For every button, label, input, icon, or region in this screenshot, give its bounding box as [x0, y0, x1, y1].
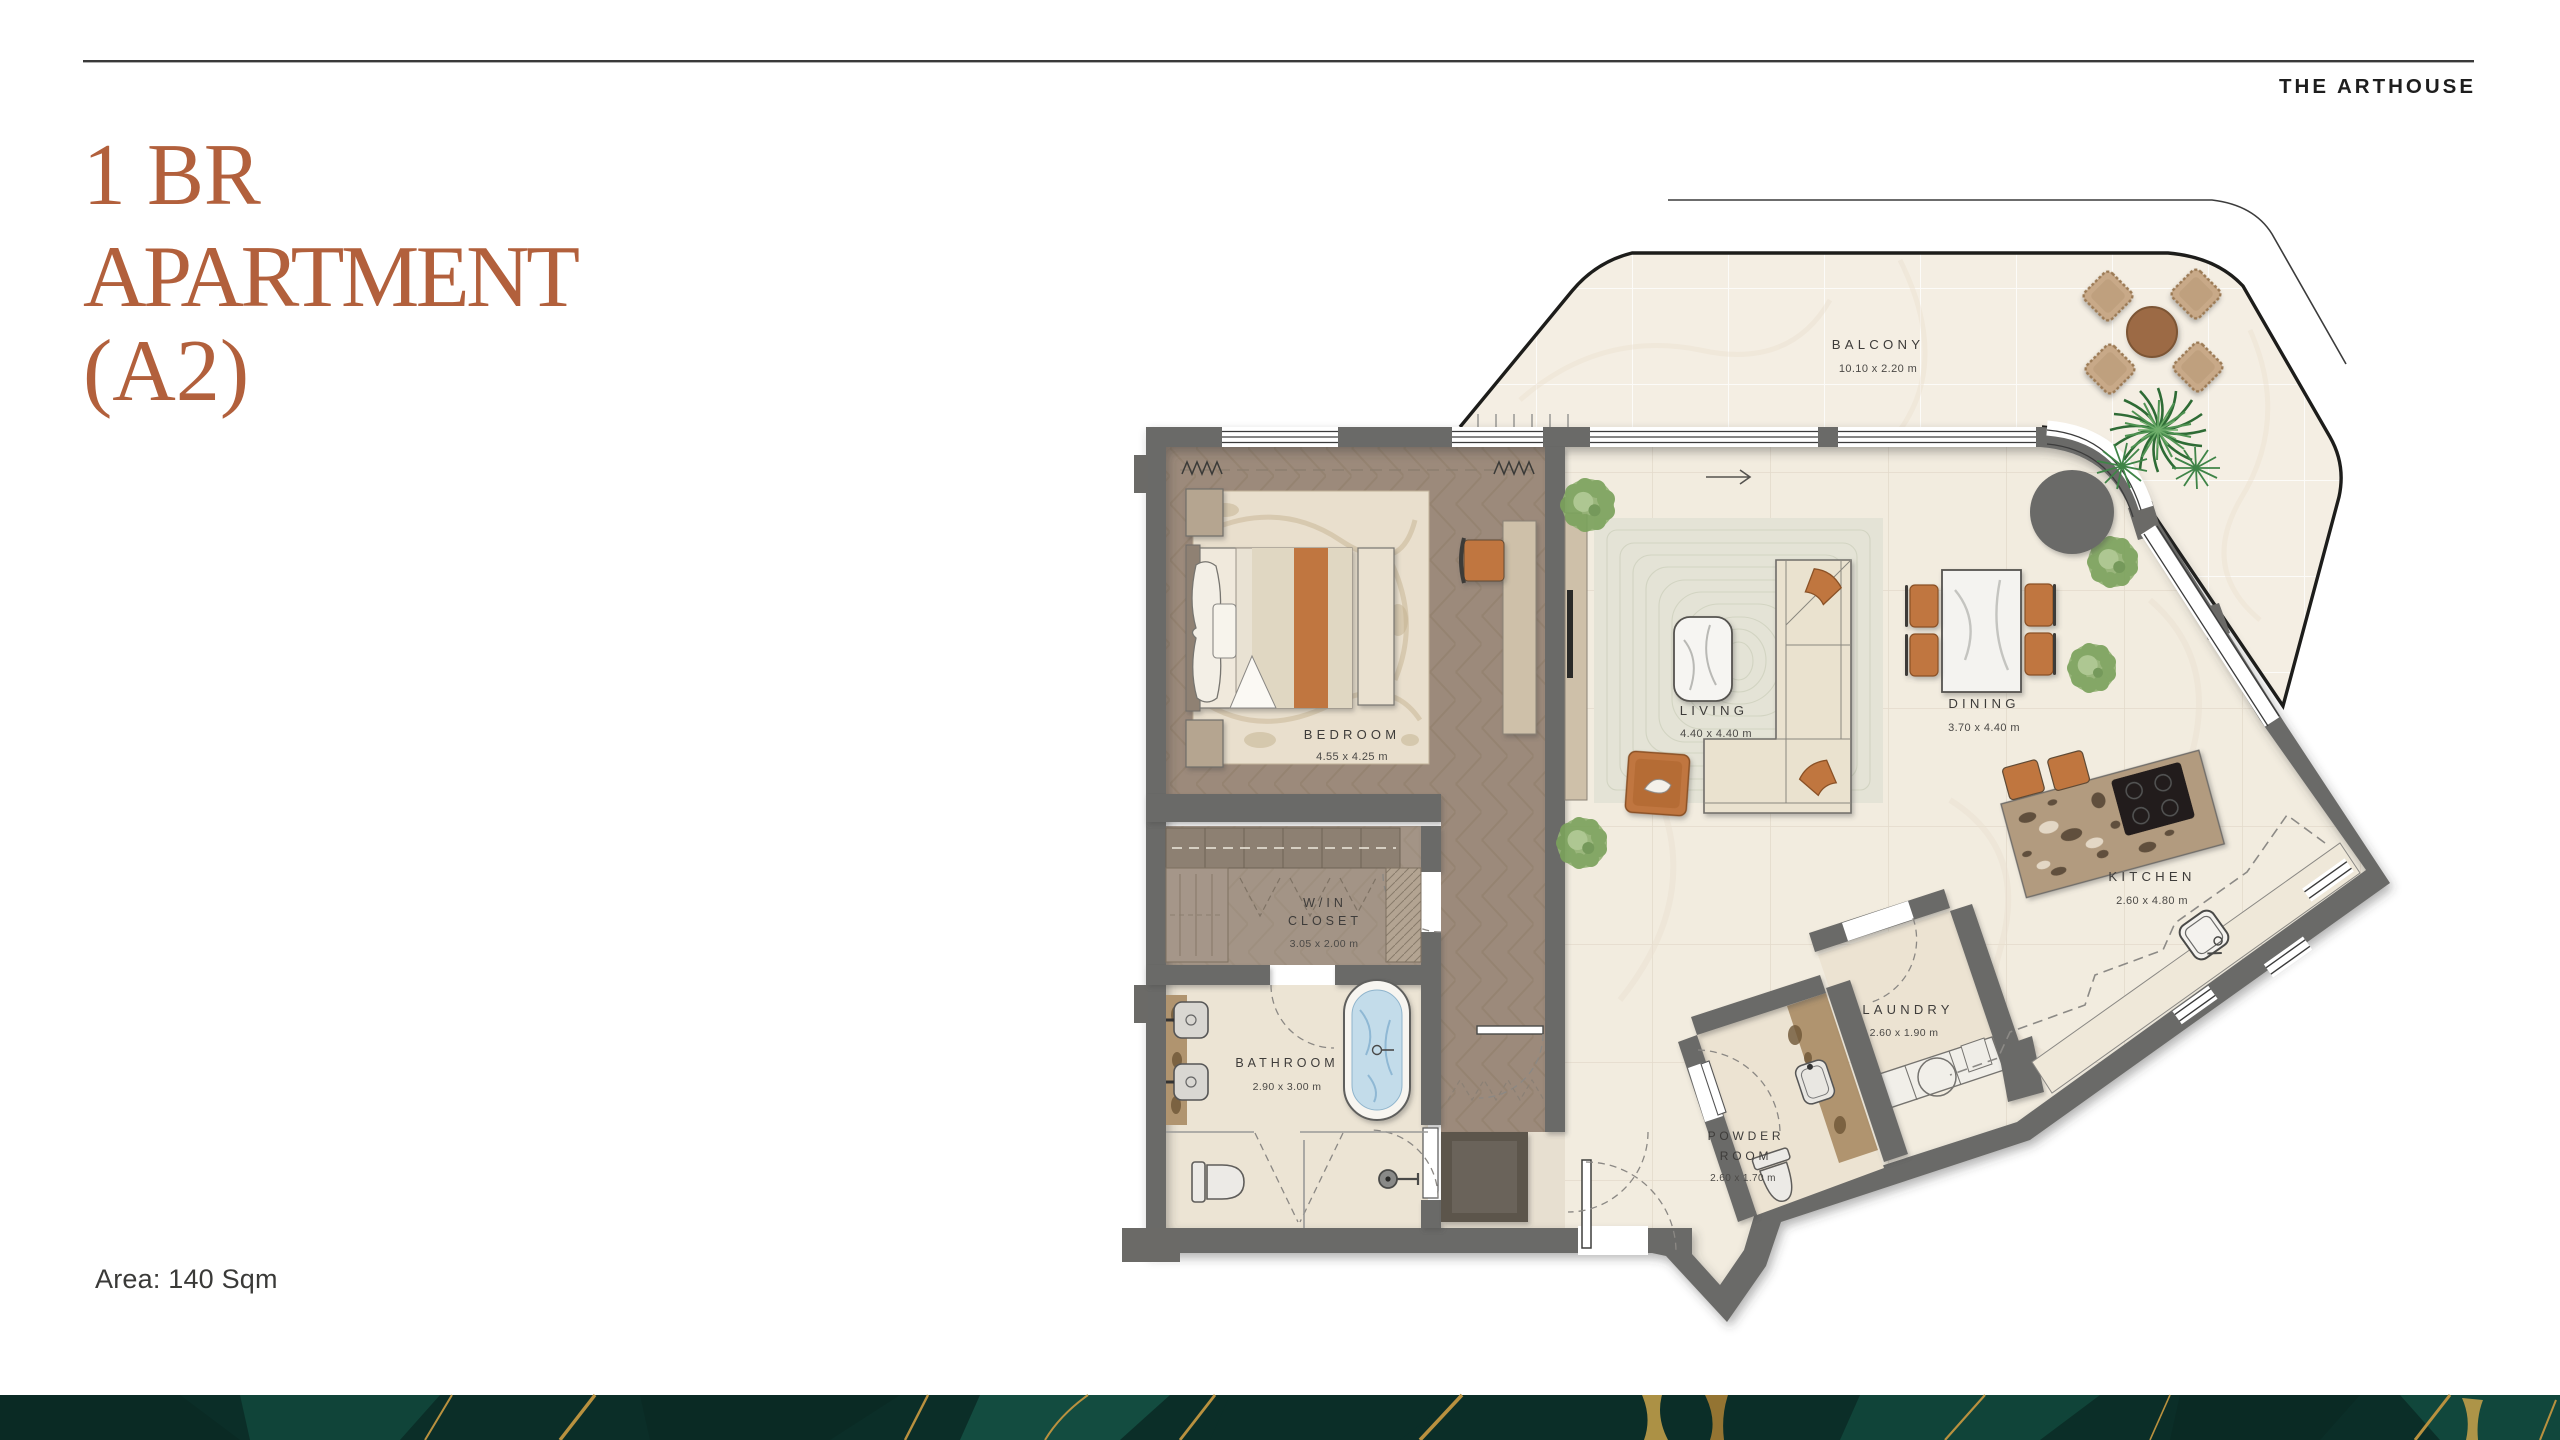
svg-text:3.70 x 4.40 m: 3.70 x 4.40 m: [1948, 722, 2020, 734]
svg-text:LAUNDRY: LAUNDRY: [1862, 1002, 1953, 1017]
svg-text:APARTMENT: APARTMENT: [83, 229, 580, 326]
svg-text:2.90 x 3.00 m: 2.90 x 3.00 m: [1253, 1081, 1322, 1093]
svg-text:4.40 x 4.40 m: 4.40 x 4.40 m: [1680, 728, 1752, 740]
svg-text:(A2): (A2): [83, 323, 249, 420]
svg-text:2.60 x 1.90 m: 2.60 x 1.90 m: [1870, 1027, 1939, 1039]
svg-text:W/IN: W/IN: [1303, 896, 1347, 910]
svg-text:10.10 x 2.20 m: 10.10 x 2.20 m: [1839, 363, 1917, 375]
svg-text:2.60 x 1.70 m: 2.60 x 1.70 m: [1710, 1173, 1776, 1184]
svg-text:BEDROOM: BEDROOM: [1304, 727, 1401, 742]
svg-text:3.05 x 2.00 m: 3.05 x 2.00 m: [1290, 938, 1359, 950]
svg-text:LIVING: LIVING: [1680, 703, 1748, 718]
svg-text:BATHROOM: BATHROOM: [1235, 1056, 1338, 1070]
svg-text:4.55 x 4.25 m: 4.55 x 4.25 m: [1316, 751, 1388, 763]
svg-text:2.60 x 4.80 m: 2.60 x 4.80 m: [2116, 895, 2188, 907]
svg-text:BALCONY: BALCONY: [1832, 337, 1924, 352]
svg-text:1 BR: 1 BR: [83, 126, 261, 223]
svg-text:Area: 140 Sqm: Area: 140 Sqm: [95, 1264, 278, 1294]
svg-text:ROOM: ROOM: [1720, 1149, 1773, 1163]
svg-text:POWDER: POWDER: [1708, 1129, 1785, 1143]
svg-text:CLOSET: CLOSET: [1288, 914, 1362, 928]
svg-text:KITCHEN: KITCHEN: [2108, 869, 2195, 884]
svg-text:DINING: DINING: [1948, 696, 2019, 711]
svg-text:THE ARTHOUSE: THE ARTHOUSE: [2279, 75, 2476, 98]
